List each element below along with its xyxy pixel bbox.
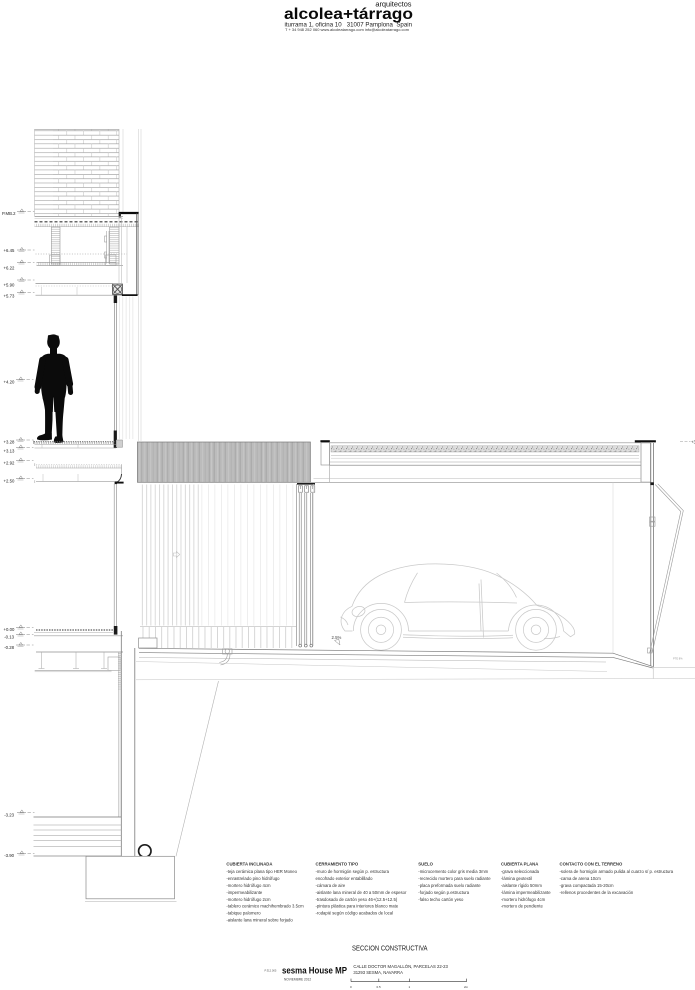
svg-text:-mortero hidrófugo 4cm: -mortero hidrófugo 4cm <box>226 883 271 888</box>
svg-text:-mortero hidrófugo 2cm: -mortero hidrófugo 2cm <box>226 897 271 902</box>
svg-text:+6.22: +6.22 <box>4 266 15 271</box>
svg-text:-falso techo cartón yeso: -falso techo cartón yeso <box>418 897 464 902</box>
svg-text:+6.45: +6.45 <box>4 248 15 253</box>
svg-text:-solera de hormigón armado pul: -solera de hormigón armado pulida al cua… <box>560 869 674 874</box>
svg-text:NOVIEMBRE 2012: NOVIEMBRE 2012 <box>284 978 311 982</box>
svg-text:-pintura plástica para interio: -pintura plástica para interiores blanco… <box>316 904 399 909</box>
svg-text:+4.20: +4.20 <box>4 380 15 385</box>
svg-text:CUBIERTA INCLINADA: CUBIERTA INCLINADA <box>226 862 272 867</box>
svg-text:+0.00: +0.00 <box>4 627 15 632</box>
svg-text:T + 34 948 252 060 www.al: T + 34 948 252 060 www.alcoleatarrago.co… <box>285 28 409 32</box>
svg-text:-impermeabilizante: -impermeabilizante <box>226 890 263 895</box>
svg-text:-lámina impermeabilizante: -lámina impermeabilizante <box>501 890 551 895</box>
svg-text:SECCION CONSTRUCTIVA: SECCION CONSTRUCTIVA <box>352 946 428 953</box>
svg-text:+2.50: +2.50 <box>4 479 15 484</box>
svg-text:+3.13: +3.13 <box>4 449 15 454</box>
svg-text:-0.13: -0.13 <box>4 635 14 640</box>
svg-text:-3.23: -3.23 <box>4 813 14 818</box>
svg-text:-rellenos procedentes de la ex: -rellenos procedentes de la excavación <box>560 890 634 895</box>
svg-text:CERRAMIENTO TIPO: CERRAMIENTO TIPO <box>316 862 359 867</box>
svg-text:SUELO: SUELO <box>418 862 433 867</box>
svg-text:-3.90: -3.90 <box>4 853 14 858</box>
svg-text:-0.28: -0.28 <box>4 645 14 650</box>
svg-text:-aislante lana mineral sobre f: -aislante lana mineral sobre forjado <box>226 918 293 923</box>
svg-text:-muro de hormigón según p. est: -muro de hormigón según p. estructura <box>316 869 390 874</box>
svg-text:+3: +3 <box>691 440 695 445</box>
svg-text:-microcemento color gris media: -microcemento color gris media 3mm <box>418 869 488 874</box>
svg-text:encofrado exterior entablillad: encofrado exterior entablillado <box>316 876 374 881</box>
svg-text:-grava compactada 15-20cm: -grava compactada 15-20cm <box>560 883 615 888</box>
svg-text:0.5: 0.5 <box>377 985 382 989</box>
svg-text:PTE 8%: PTE 8% <box>673 657 683 661</box>
svg-text:-cama de arena 10cm: -cama de arena 10cm <box>560 876 602 881</box>
svg-text:-aislante rígido 50mm: -aislante rígido 50mm <box>501 883 542 888</box>
svg-text:-placa preformada suelo radian: -placa preformada suelo radiante <box>418 883 481 888</box>
svg-text:-forjado según p.estructura: -forjado según p.estructura <box>418 890 469 895</box>
svg-text:-enrastrelado pino hidrófugo: -enrastrelado pino hidrófugo <box>226 876 280 881</box>
svg-text:-recrecido mortero para suelo: -recrecido mortero para suelo radiante <box>418 876 491 881</box>
svg-text:2m: 2m <box>464 985 469 989</box>
svg-text:+5.73: +5.73 <box>4 294 15 299</box>
svg-text:P.312.005: P.312.005 <box>265 968 277 972</box>
svg-text:31293 SESMA, NAVARRA: 31293 SESMA, NAVARRA <box>353 970 403 975</box>
svg-text:-cámara de aire: -cámara de aire <box>316 883 346 888</box>
svg-text:-rodapié según código acabados: -rodapié según código acabados de local <box>316 911 394 916</box>
svg-text:+3.28: +3.28 <box>4 440 15 445</box>
svg-text:-grava seleccionada: -grava seleccionada <box>501 869 540 874</box>
svg-text:+5.90: +5.90 <box>4 283 15 288</box>
svg-text:-tabique palomero: -tabique palomero <box>226 911 261 916</box>
svg-text:CONTACTO CON EL TERRENO: CONTACTO CON EL TERRENO <box>560 862 624 867</box>
svg-text:sesma House MP: sesma House MP <box>282 966 347 976</box>
svg-text:-mortero hidrófugo 4cm: -mortero hidrófugo 4cm <box>501 897 546 902</box>
svg-text:P.MB.2: P.MB.2 <box>2 211 16 216</box>
svg-text:-trasdosado de cartón yeso 46+: -trasdosado de cartón yeso 46+(12.5+12.5… <box>316 897 398 902</box>
svg-text:-mortero de pendiente: -mortero de pendiente <box>501 904 543 909</box>
svg-text:-tablero cerámico machihembrad: -tablero cerámico machihembrado 3.5cm <box>226 904 304 909</box>
svg-text:2.5%: 2.5% <box>332 635 342 640</box>
svg-text:-teja cerámica plana tipo HER: -teja cerámica plana tipo HER Moneo <box>226 869 297 874</box>
svg-text:CUBIERTA PLANA: CUBIERTA PLANA <box>501 862 538 867</box>
svg-text:-lámina geotextil: -lámina geotextil <box>501 876 532 881</box>
svg-text:alcolea+tárrago: alcolea+tárrago <box>284 6 413 23</box>
svg-text:+2.92: +2.92 <box>4 461 15 466</box>
svg-text:-aislante lana mineral de 40 a: -aislante lana mineral de 40 a 50mm de e… <box>316 890 408 895</box>
svg-text:CALLE DOCTOR MAGALLÓN, PARCELA: CALLE DOCTOR MAGALLÓN, PARCELAS 22-23 <box>353 963 448 969</box>
